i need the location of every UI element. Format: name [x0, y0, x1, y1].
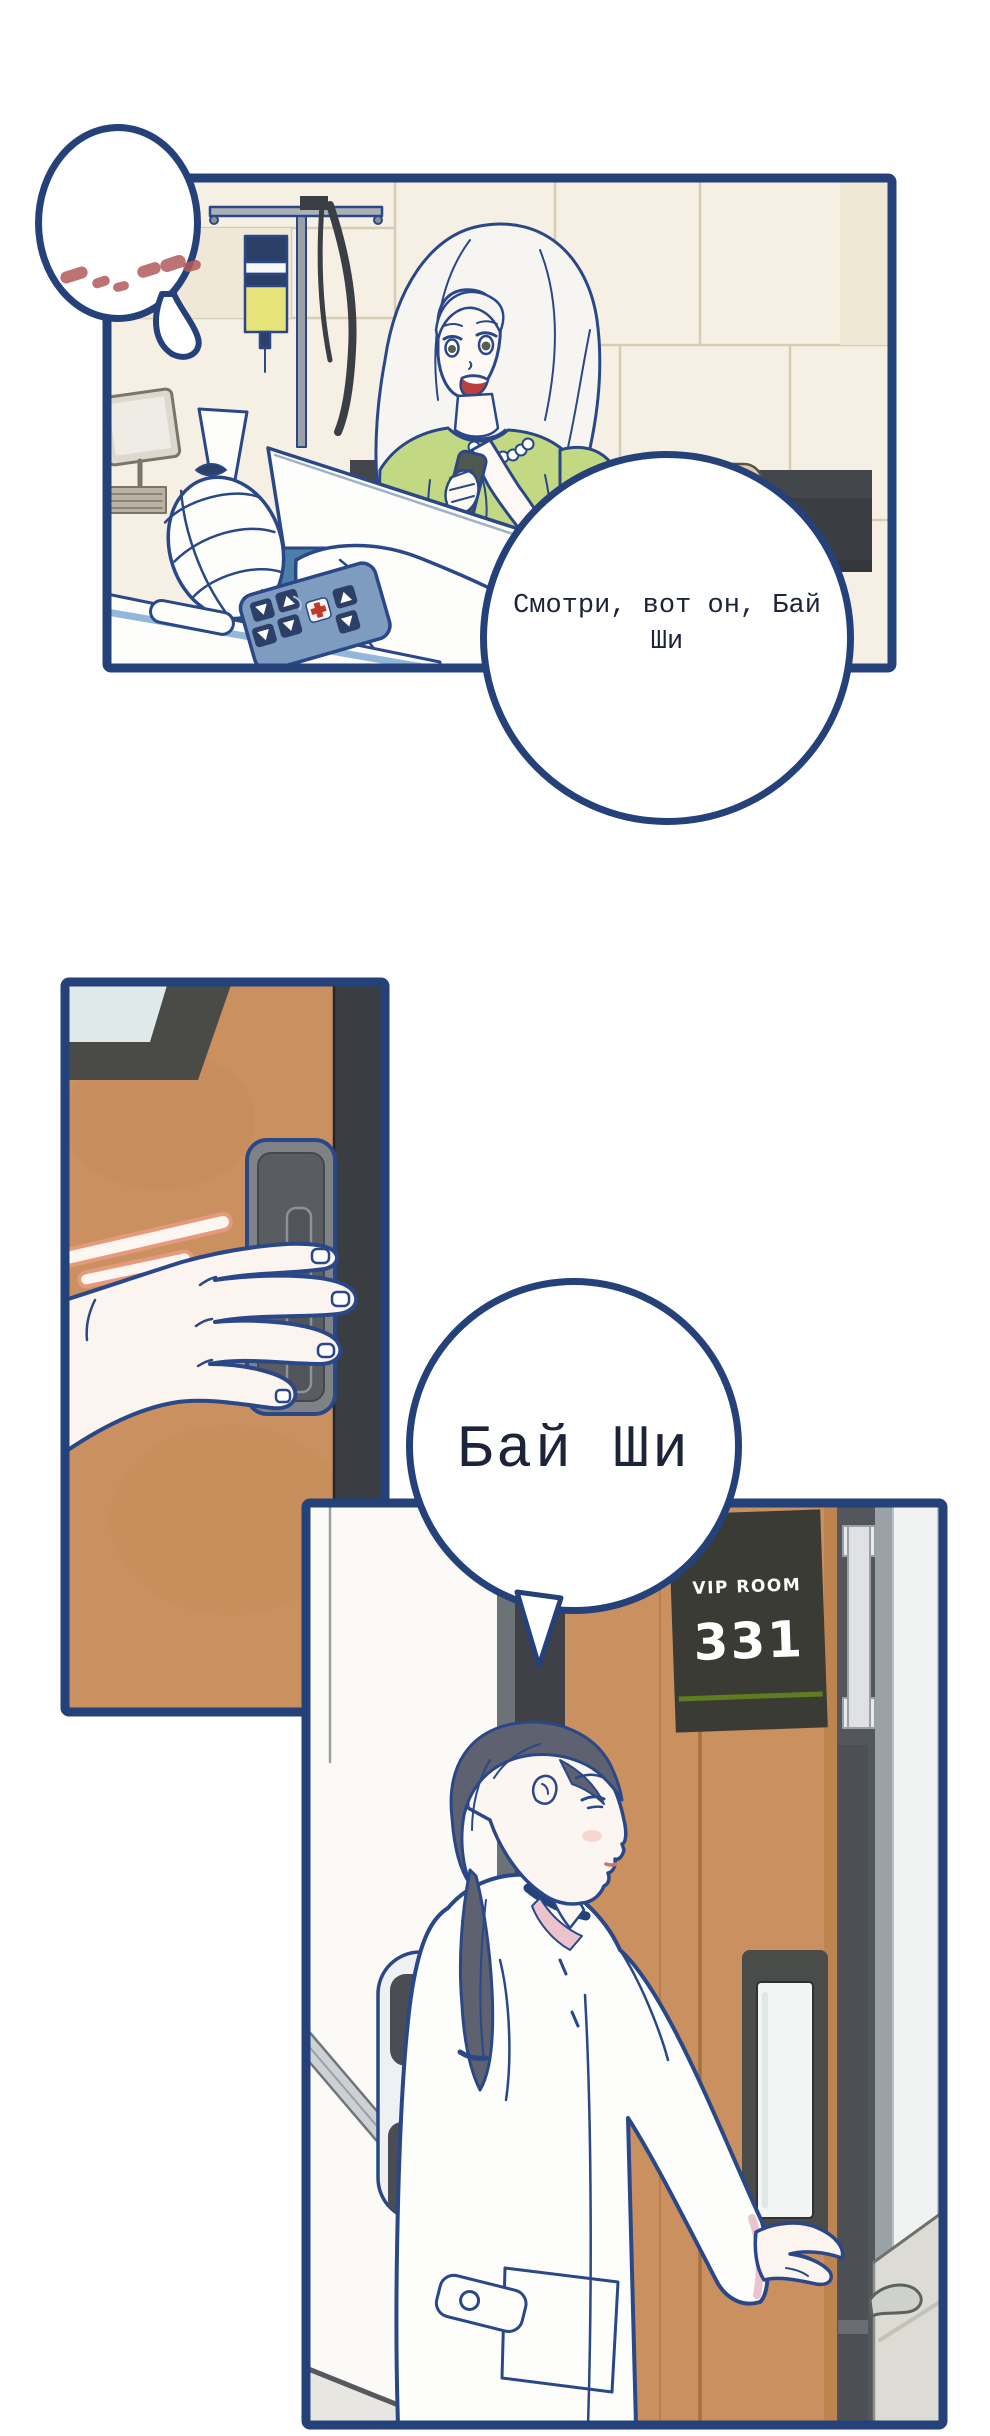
ellipsis-bubble-tail [128, 290, 218, 380]
ellipsis-dot [136, 261, 163, 280]
vip-door-art: VIP ROOM 331 [301, 1498, 953, 2435]
speech-text-name: Бай Ши [457, 1407, 691, 1485]
speech-bubble-main: Смотри, вот он, Бай Ши [480, 451, 854, 825]
ear [533, 1776, 556, 1804]
ellipsis-dot [91, 274, 111, 289]
speech-text-main: Смотри, вот он, Бай Ши [505, 589, 829, 660]
speech-bubble-name: Бай Ши [406, 1278, 742, 1614]
name-bubble-tail [505, 1582, 585, 1677]
door-window-glass [65, 982, 168, 1042]
vip-sign-label: VIP ROOM [692, 1575, 801, 1599]
vip-sign-number: 331 [693, 1610, 805, 1672]
ellipsis-dot [59, 265, 89, 285]
panel-vip-door: VIP ROOM 331 [301, 1498, 953, 2435]
comic-page: VIP ROOM 331 [0, 0, 990, 2436]
sign-bracket [843, 1526, 875, 1728]
